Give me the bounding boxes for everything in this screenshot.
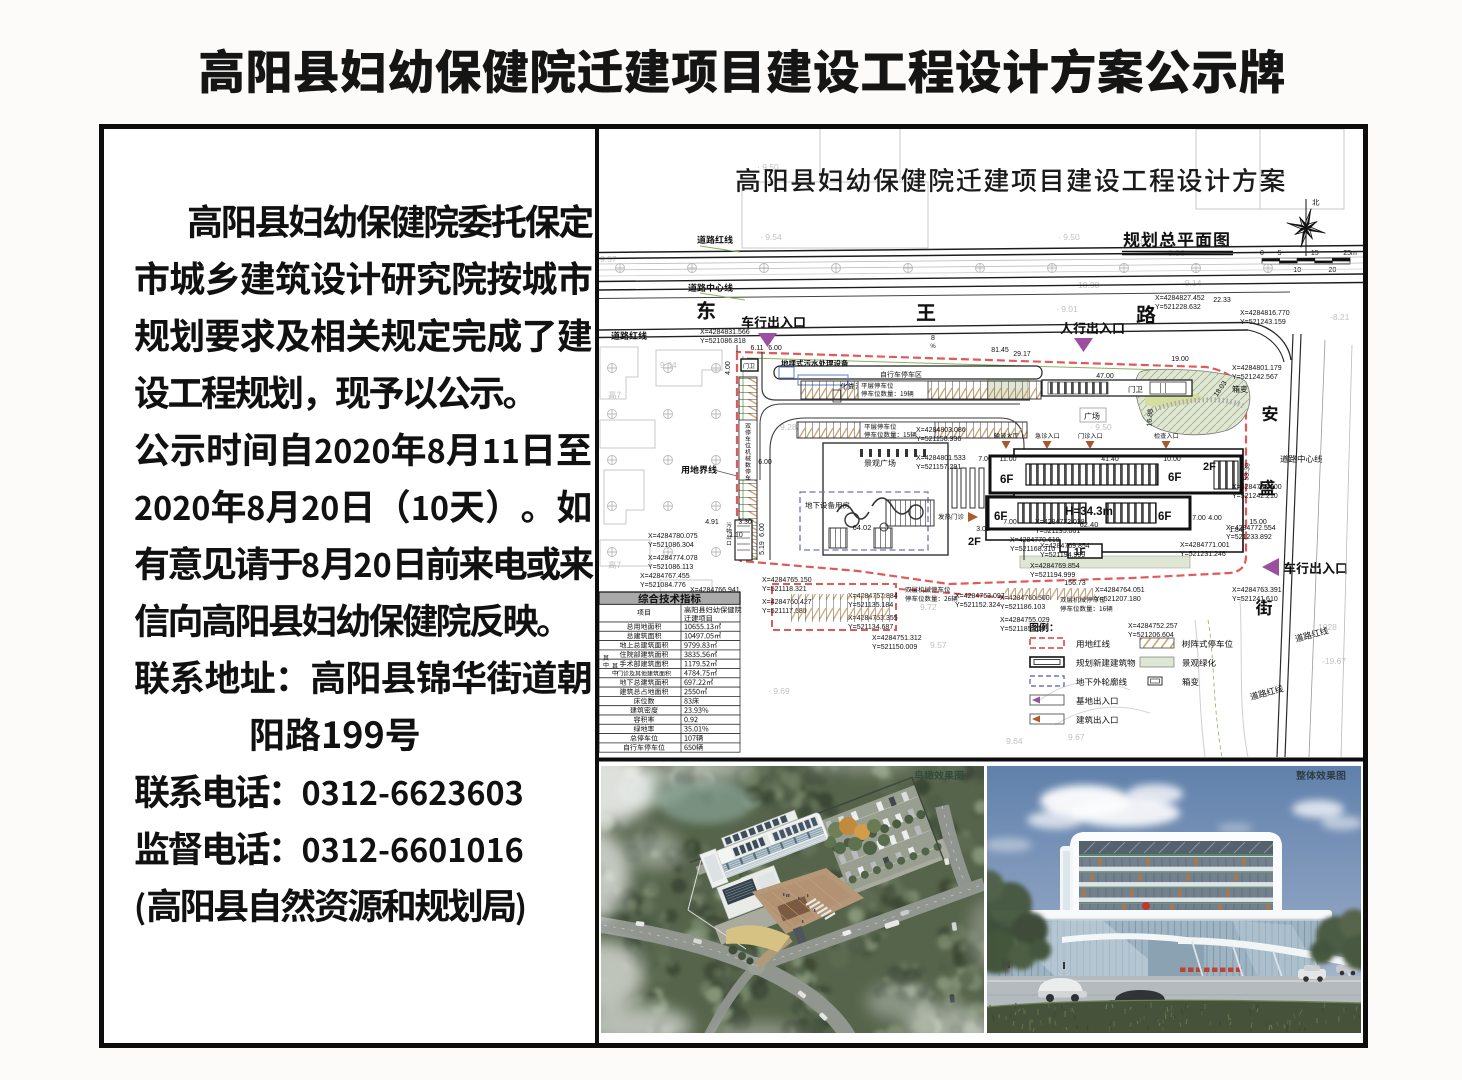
- svg-text:3.30: 3.30: [738, 519, 752, 526]
- svg-text:-9.14: -9.14: [1182, 278, 1202, 288]
- svg-text:9.72: 9.72: [920, 602, 937, 612]
- svg-text:Y=521157.291: Y=521157.291: [916, 464, 961, 471]
- svg-text:Y=521228.632: Y=521228.632: [1155, 304, 1201, 311]
- svg-text:X=4284831.566: X=4284831.566: [700, 329, 750, 336]
- svg-text:6.00: 6.00: [768, 345, 782, 352]
- svg-text:20: 20: [1329, 267, 1337, 274]
- svg-text:· 9.50: · 9.50: [1090, 422, 1112, 432]
- svg-text:Y=521231.246: Y=521231.246: [1180, 551, 1226, 558]
- svg-text:1928: 1928: [1318, 622, 1337, 632]
- svg-text:9.04: 9.04: [660, 360, 677, 370]
- svg-text:Y=521118.321: Y=521118.321: [762, 586, 807, 593]
- svg-text:Y=521242.567: Y=521242.567: [1232, 374, 1278, 381]
- svg-text:· 9.01: · 9.01: [1056, 304, 1078, 314]
- svg-text:6F: 6F: [1168, 472, 1181, 484]
- svg-text:Y=521194.999: Y=521194.999: [1030, 572, 1075, 579]
- svg-text:%: %: [930, 344, 936, 350]
- svg-text:15: 15: [1311, 250, 1319, 257]
- svg-text:X=4284772.038: X=4284772.038: [1035, 519, 1085, 526]
- svg-text:81.45: 81.45: [991, 347, 1009, 354]
- svg-text:19.00: 19.00: [1171, 356, 1189, 363]
- svg-text:X=4284827.452: X=4284827.452: [1155, 295, 1205, 302]
- svg-text:X=4284803.086: X=4284803.086: [916, 427, 966, 434]
- svg-text:Y=521241.610: Y=521241.610: [1232, 596, 1278, 603]
- svg-text:64.02: 64.02: [853, 523, 872, 532]
- svg-text:-19.67: -19.67: [1322, 656, 1346, 666]
- svg-text:X=4284770.619: X=4284770.619: [1010, 537, 1060, 544]
- svg-text:10: 10: [1293, 267, 1301, 274]
- svg-text:9.57: 9.57: [930, 640, 947, 650]
- svg-text:11.00: 11.00: [1000, 456, 1017, 463]
- svg-text:22.33: 22.33: [1213, 297, 1231, 304]
- svg-text:Y=521242.210: Y=521242.210: [1232, 493, 1278, 500]
- svg-text:10.00: 10.00: [1163, 456, 1181, 463]
- svg-text:41.40: 41.40: [1101, 456, 1119, 463]
- svg-text:Y=521186.103: Y=521186.103: [1000, 604, 1045, 611]
- svg-text:Y=521168.310: Y=521168.310: [1010, 546, 1055, 553]
- svg-text:X=4284752.257: X=4284752.257: [1128, 623, 1178, 630]
- svg-text:47.00: 47.00: [1096, 373, 1114, 380]
- svg-text:7.00: 7.00: [1003, 519, 1017, 526]
- svg-text:X=4284763.391: X=4284763.391: [1232, 587, 1282, 594]
- svg-text:4.00: 4.00: [725, 361, 732, 375]
- svg-text:X=4284816.770: X=4284816.770: [1240, 310, 1290, 317]
- svg-text:156.73: 156.73: [1064, 580, 1086, 587]
- svg-text:· 9.69: · 9.69: [768, 686, 790, 696]
- svg-text:3.00: 3.00: [976, 526, 990, 533]
- svg-text:2F: 2F: [968, 536, 981, 548]
- svg-text:1.10: 1.10: [729, 532, 743, 539]
- svg-text:Y=521195.061: Y=521195.061: [1035, 528, 1080, 535]
- svg-text:Y=521152.324: Y=521152.324: [955, 602, 1000, 609]
- svg-text:Y=521185.714: Y=521185.714: [1000, 626, 1045, 633]
- svg-text:29.17: 29.17: [1013, 351, 1031, 358]
- svg-text:6F: 6F: [1000, 474, 1013, 486]
- svg-text:Y=521084.776: Y=521084.776: [640, 582, 686, 589]
- svg-text:X=4284772.554: X=4284772.554: [1226, 525, 1276, 532]
- svg-text:Y=521134.687: Y=521134.687: [848, 624, 893, 631]
- svg-text:Y=521086.304: Y=521086.304: [648, 542, 694, 549]
- svg-text:X=4284780.075: X=4284780.075: [648, 533, 698, 540]
- svg-text:9.64: 9.64: [1006, 736, 1023, 746]
- svg-text:7.00: 7.00: [978, 456, 992, 463]
- svg-text:X=4284764.051: X=4284764.051: [1095, 587, 1145, 594]
- svg-text:6F: 6F: [1158, 511, 1171, 523]
- svg-text:4.00: 4.00: [1208, 515, 1222, 522]
- svg-text:9.67: 9.67: [1068, 732, 1085, 742]
- svg-text:X=4284767.455: X=4284767.455: [640, 573, 690, 580]
- svg-text:Y=521150.009: Y=521150.009: [872, 644, 917, 651]
- svg-text:X=4284765.150: X=4284765.150: [762, 577, 812, 584]
- svg-text:Y=521243.159: Y=521243.159: [1240, 319, 1286, 326]
- svg-text:X=4284751.312: X=4284751.312: [872, 635, 922, 642]
- svg-text:6.00: 6.00: [759, 523, 766, 537]
- svg-text:6.00: 6.00: [758, 459, 772, 466]
- svg-text:· 9.54: · 9.54: [760, 232, 782, 242]
- svg-text:X=4284771.001: X=4284771.001: [1180, 542, 1230, 549]
- svg-text:7.00: 7.00: [1192, 515, 1206, 522]
- svg-text:0: 0: [1260, 250, 1264, 257]
- svg-text:6.11: 6.11: [750, 345, 763, 352]
- svg-text:Y=521233.892: Y=521233.892: [1226, 534, 1272, 541]
- svg-text:-8.21: -8.21: [1330, 312, 1350, 322]
- svg-text:X=4284788.900: X=4284788.900: [1232, 484, 1282, 491]
- svg-text:Y=521086.818: Y=521086.818: [700, 338, 746, 345]
- svg-text:Y=521158.936: Y=521158.936: [916, 436, 961, 443]
- svg-text:X=4284801.533: X=4284801.533: [916, 455, 966, 462]
- svg-text:X=4284763.097: X=4284763.097: [955, 593, 1005, 600]
- svg-text:Y=521086.113: Y=521086.113: [648, 564, 693, 571]
- svg-text:5: 5: [1278, 250, 1282, 257]
- svg-text:X=4284801.179: X=4284801.179: [1232, 365, 1282, 372]
- svg-text:X=4284755.029: X=4284755.029: [1000, 617, 1050, 624]
- svg-text:X=4284769.854: X=4284769.854: [1030, 563, 1080, 570]
- svg-text:· 9.50: · 9.50: [1058, 232, 1080, 242]
- svg-text:Y=521194.999: Y=521194.999: [1040, 552, 1085, 559]
- svg-text:4.91: 4.91: [705, 519, 719, 526]
- svg-text:8: 8: [931, 335, 935, 342]
- svg-text:5.19: 5.19: [759, 541, 766, 555]
- svg-text:H=34.3m: H=34.3m: [1065, 506, 1113, 518]
- svg-text:X=4284774.078: X=4284774.078: [648, 555, 698, 562]
